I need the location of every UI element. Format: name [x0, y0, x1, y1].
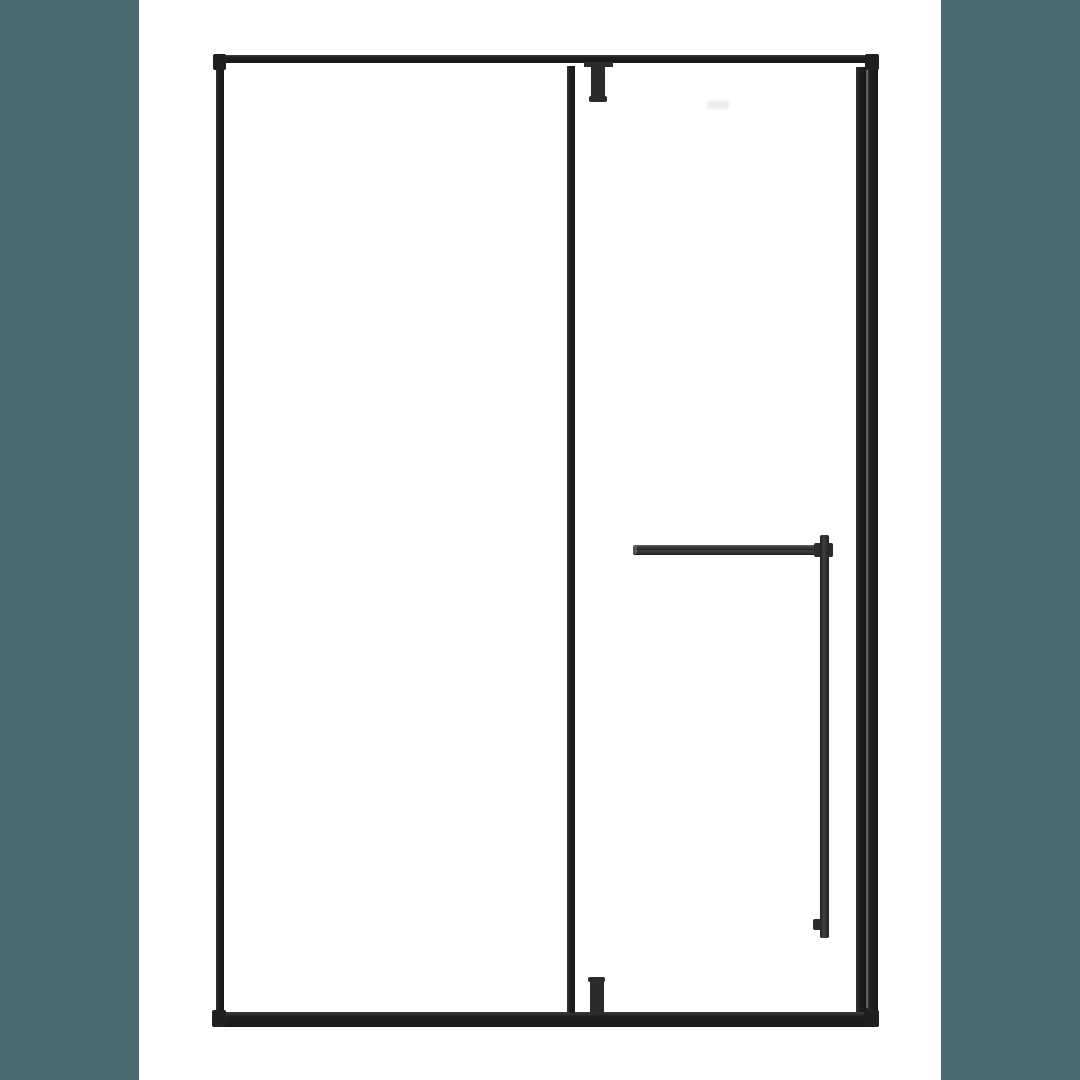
top-pivot-hinge-pin	[591, 66, 605, 98]
frame-left-stile	[216, 55, 224, 1013]
frame-corner-cap-bottom-right	[864, 1010, 879, 1027]
top-pivot-hinge-base	[589, 96, 607, 102]
watermark	[707, 101, 729, 109]
left-color-bar	[0, 0, 139, 1080]
door-divider-stile	[567, 66, 575, 1013]
product-image-stage	[0, 0, 1080, 1080]
frame-bottom-rail	[216, 1012, 878, 1027]
bottom-pivot-guide-block	[590, 978, 604, 1014]
towel-bar-horizontal	[633, 545, 832, 555]
right-color-bar	[941, 0, 1080, 1080]
frame-right-stile	[867, 55, 878, 1027]
frame-corner-cap-bottom-left	[212, 1010, 226, 1027]
towel-bar-bottom-standoff	[813, 919, 821, 930]
frame-right-seam-highlight	[866, 70, 868, 1008]
frame-corner-cap-top-right	[865, 54, 879, 70]
frame-corner-cap-top-left	[213, 54, 226, 70]
towel-bar-left-end-cap	[633, 546, 637, 554]
towel-bar-vertical	[820, 535, 829, 938]
frame-top-rail	[216, 55, 878, 63]
